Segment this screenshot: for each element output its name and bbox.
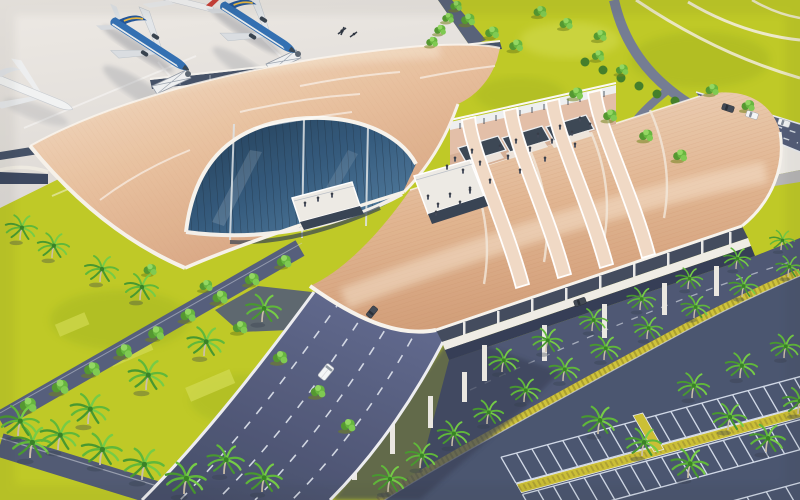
airport-rendering bbox=[0, 0, 800, 500]
rendering-canvas bbox=[0, 0, 800, 500]
